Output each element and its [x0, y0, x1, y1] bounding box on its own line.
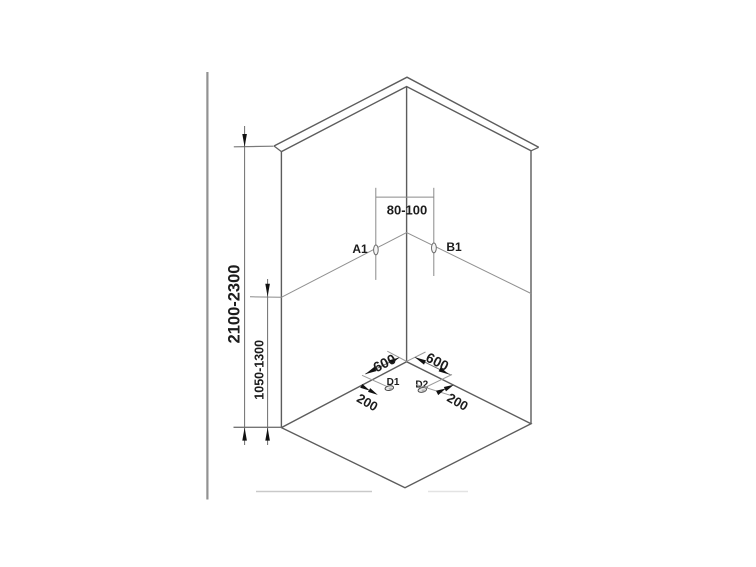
svg-text:2100-2300: 2100-2300: [226, 265, 244, 344]
svg-text:600: 600: [370, 350, 398, 375]
svg-text:80-100: 80-100: [387, 203, 427, 218]
svg-text:1050-1300: 1050-1300: [253, 340, 267, 400]
svg-text:600: 600: [423, 349, 451, 374]
svg-text:A1: A1: [352, 242, 368, 256]
svg-text:D1: D1: [387, 377, 400, 388]
svg-text:200: 200: [445, 390, 471, 414]
svg-text:B1: B1: [446, 240, 462, 254]
